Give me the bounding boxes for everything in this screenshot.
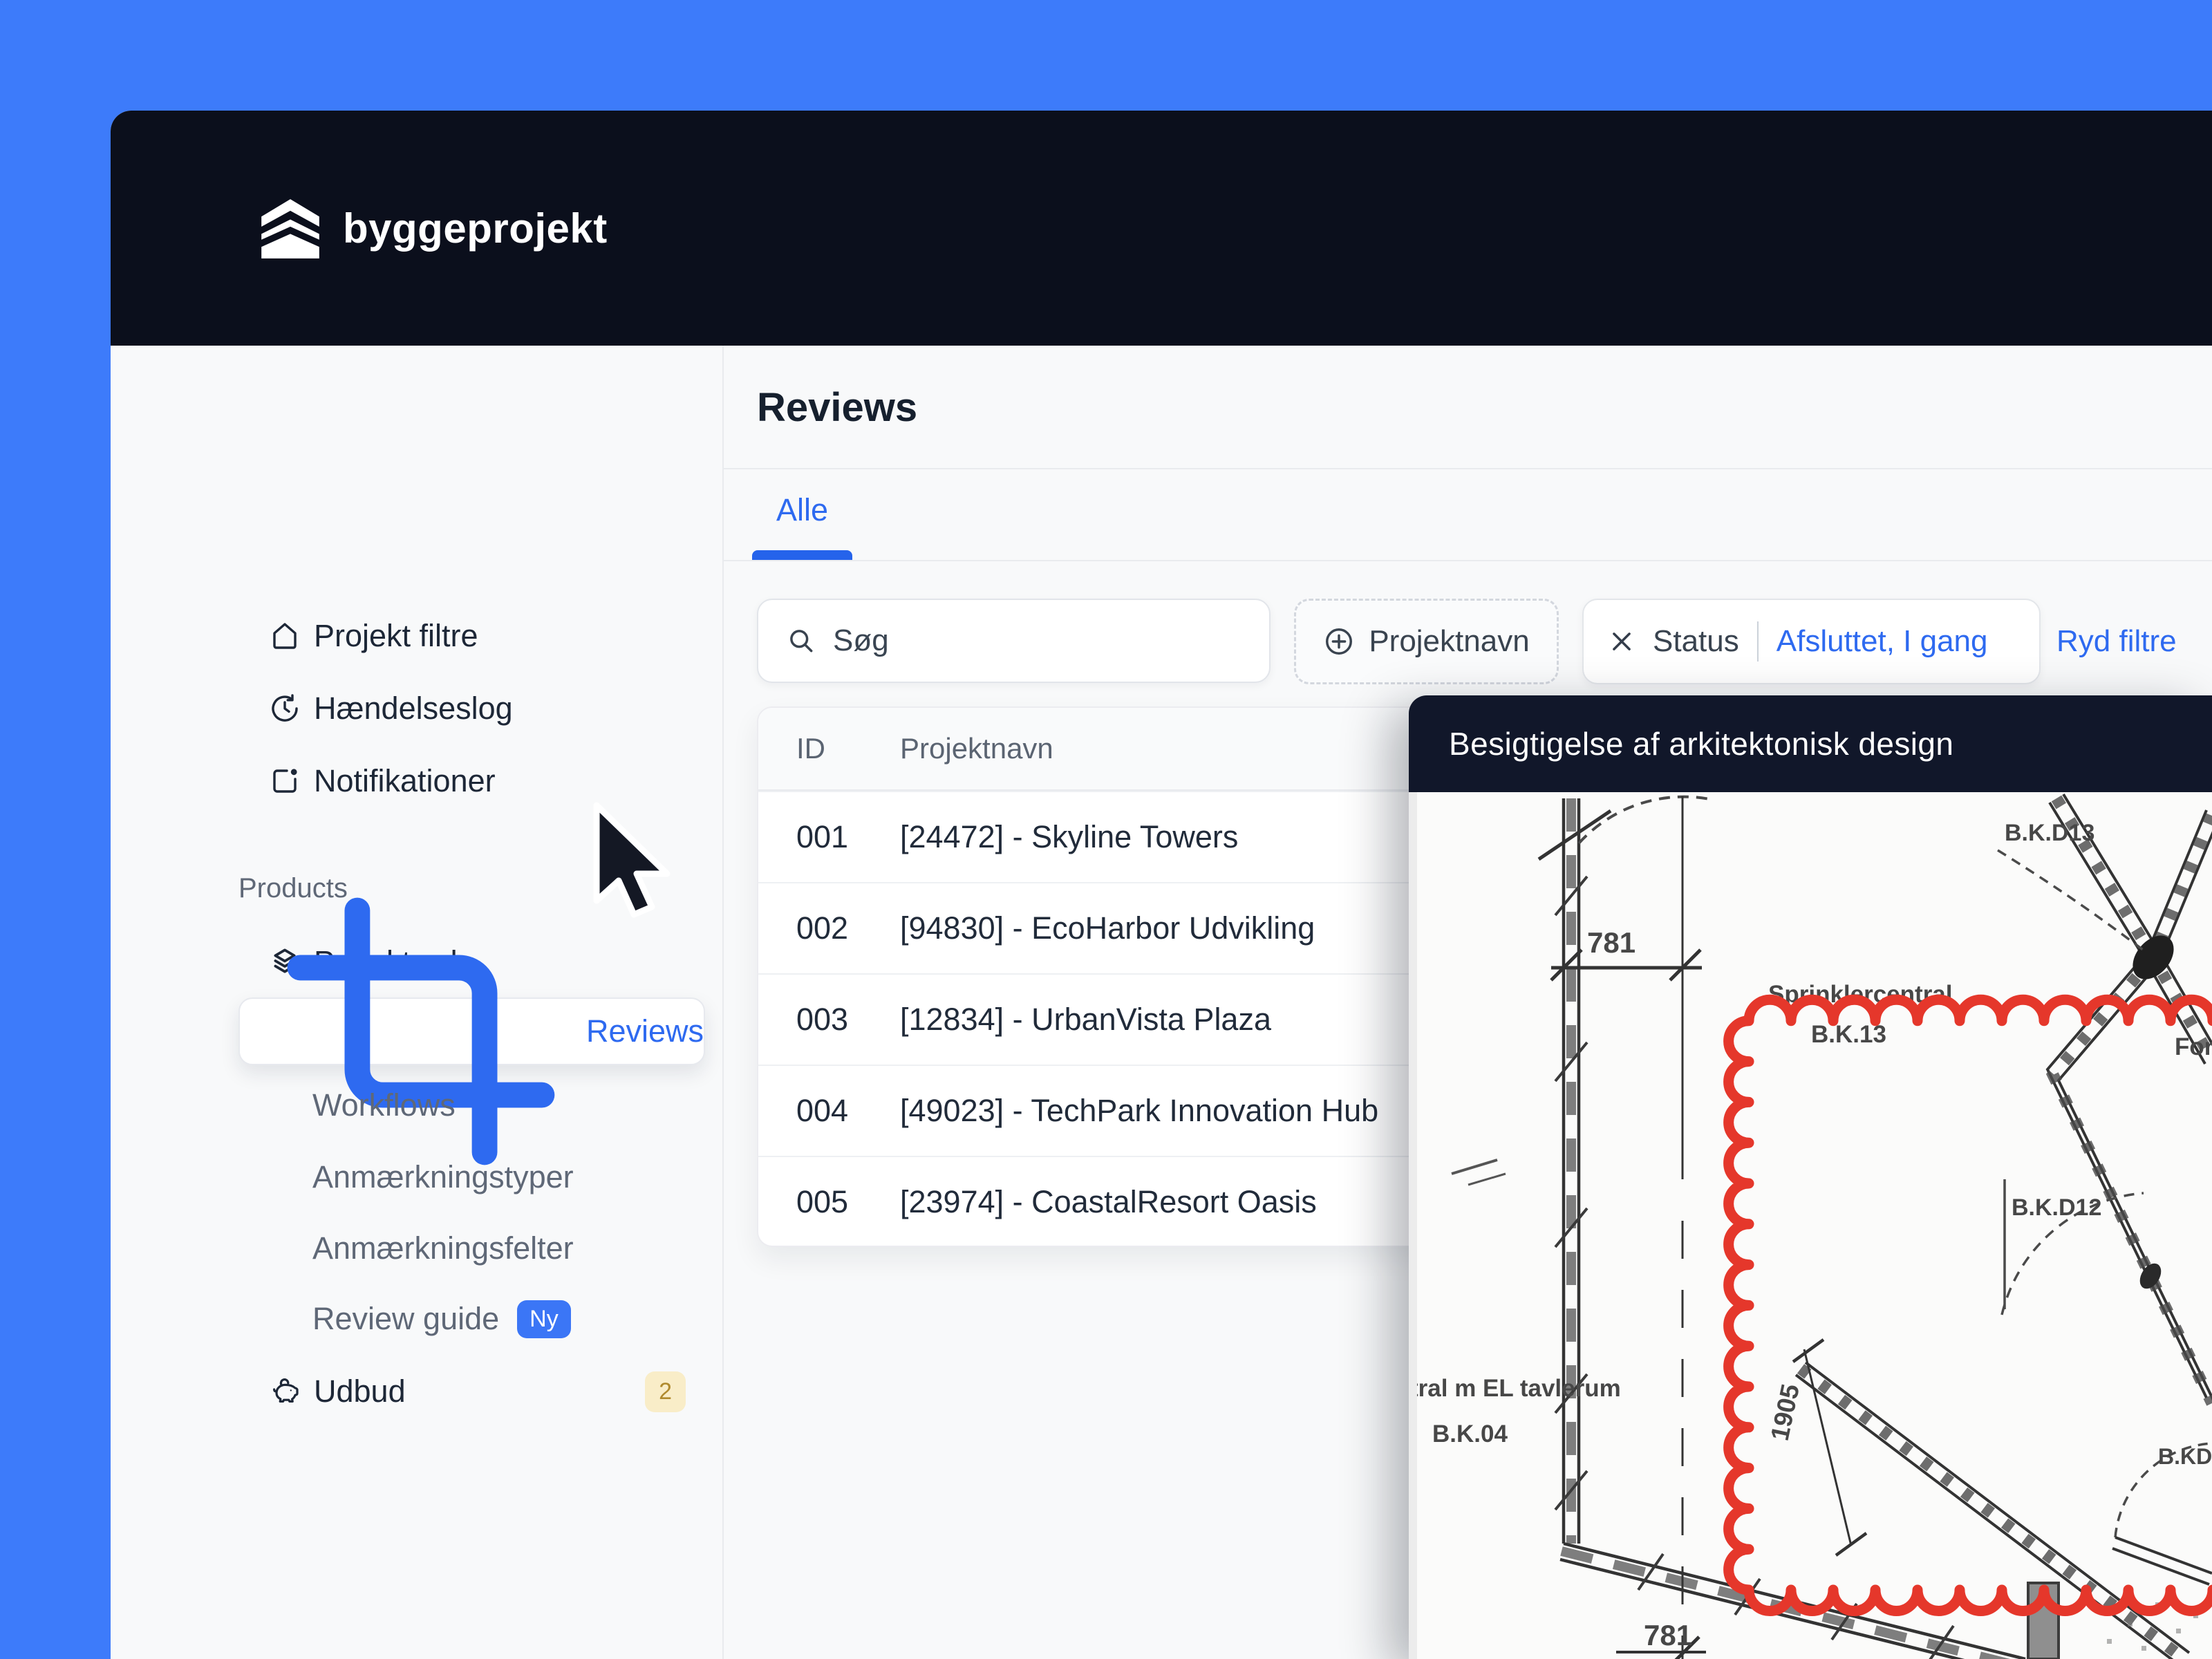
new-badge: Ny [517, 1300, 571, 1338]
room-label-bk04: B.K.04 [1432, 1421, 1508, 1447]
search-icon [786, 626, 816, 656]
sidebar-item-label: Anmærkningstyper [312, 1159, 574, 1195]
brand[interactable]: byggeprojekt [254, 196, 608, 260]
app-window: byggeprojekt Projekt filtre Hændelseslog… [111, 111, 2212, 1659]
architectural-drawing[interactable]: 781 B.K.D13 [1409, 792, 2212, 1659]
cell-id: 005 [758, 1184, 900, 1220]
sidebar-item-label: Udbud [314, 1374, 406, 1409]
sidebar-item-anmaerkningsfelter[interactable]: Anmærkningsfelter [111, 1214, 705, 1283]
sidebar-item-label: Notifikationer [314, 763, 496, 799]
status-filter-label: Status [1653, 624, 1739, 659]
brand-name: byggeprojekt [343, 205, 608, 252]
search-input[interactable] [832, 623, 1194, 659]
close-icon[interactable] [1609, 628, 1635, 655]
status-filter-chip[interactable]: Status Afsluttet, I gang [1582, 599, 2041, 684]
dimension-781-bottom: 781 [1644, 1619, 1692, 1651]
search-input-wrap[interactable] [757, 599, 1271, 683]
cell-id: 003 [758, 1002, 900, 1038]
sidebar-item-projekt-filtre[interactable]: Projekt filtre [111, 601, 705, 671]
status-filter-value[interactable]: Afsluttet, I gang [1777, 624, 1988, 659]
sidebar-item-workflows[interactable]: Workflows [111, 1071, 705, 1140]
stacked-layers-icon [254, 196, 326, 260]
divider [1757, 621, 1759, 662]
paper-edge [1409, 792, 1417, 1659]
sidebar-item-label: Reviews [586, 1013, 704, 1049]
circle-plus-icon [1323, 626, 1355, 657]
sidebar-item-notifikationer[interactable]: Notifikationer [111, 747, 705, 816]
cell-id: 001 [758, 819, 900, 855]
overlay-body: 781 B.K.D13 [1409, 792, 2212, 1659]
door-label-bkd13: B.K.D13 [2005, 820, 2094, 846]
door-label-bkd-cut: B.KD [2158, 1444, 2212, 1469]
sidebar-item-label: Anmærkningsfelter [312, 1230, 574, 1266]
door-label-bkd12: B.K.D12 [2012, 1194, 2101, 1221]
overlay-header[interactable]: Besigtigelse af arkitektonisk design [1409, 695, 2212, 792]
add-filter-chip-projektnavn[interactable]: Projektnavn [1294, 599, 1559, 684]
cell-id: 004 [758, 1093, 900, 1129]
label-for-cut: For [2175, 1033, 2212, 1060]
sidebar-item-label: Hændelseslog [314, 691, 513, 727]
room-label-el: tral m EL tavlerum [1410, 1375, 1621, 1402]
home-icon [268, 619, 301, 653]
sidebar: Projekt filtre Hændelseslog Notifikation… [111, 346, 724, 1659]
sidebar-item-udbud[interactable]: Udbud 2 [111, 1357, 705, 1426]
piggy-bank-icon [268, 1375, 301, 1408]
tab-active-indicator [752, 550, 852, 561]
sidebar-item-label: Projekt filtre [314, 618, 478, 654]
overlay-title: Besigtigelse af arkitektonisk design [1449, 725, 1953, 762]
app-header: byggeprojekt [111, 111, 2212, 346]
divider [722, 560, 2212, 561]
filter-chip-label: Projektnavn [1369, 624, 1529, 659]
page-title: Reviews [757, 386, 917, 430]
divider [722, 468, 2212, 469]
dimension-781-top: 781 [1587, 926, 1635, 959]
sidebar-item-anmaerkningstyper[interactable]: Anmærkningstyper [111, 1143, 705, 1212]
sidebar-item-reviews-active[interactable]: Reviews [238, 997, 705, 1065]
clear-filters-link[interactable]: Ryd filtre [2056, 599, 2177, 684]
sidebar-item-haendelseslog[interactable]: Hændelseslog [111, 674, 705, 743]
dimension-1905: 1905 [1765, 1382, 1805, 1443]
count-badge: 2 [645, 1371, 686, 1412]
sidebar-item-label: Workflows [312, 1087, 456, 1123]
cell-id: 002 [758, 910, 900, 946]
history-clock-icon [268, 692, 301, 725]
sidebar-item-review-guide[interactable]: Review guide Ny [111, 1284, 705, 1353]
revision-cloud-annotation[interactable] [1729, 1000, 2212, 1611]
tab-alle[interactable]: Alle [752, 492, 852, 528]
column-header-id[interactable]: ID [758, 732, 900, 765]
review-overlay-panel: Besigtigelse af arkitektonisk design [1409, 695, 2212, 1659]
sidebar-item-label: Review guide [312, 1301, 499, 1337]
notification-icon [268, 765, 301, 798]
